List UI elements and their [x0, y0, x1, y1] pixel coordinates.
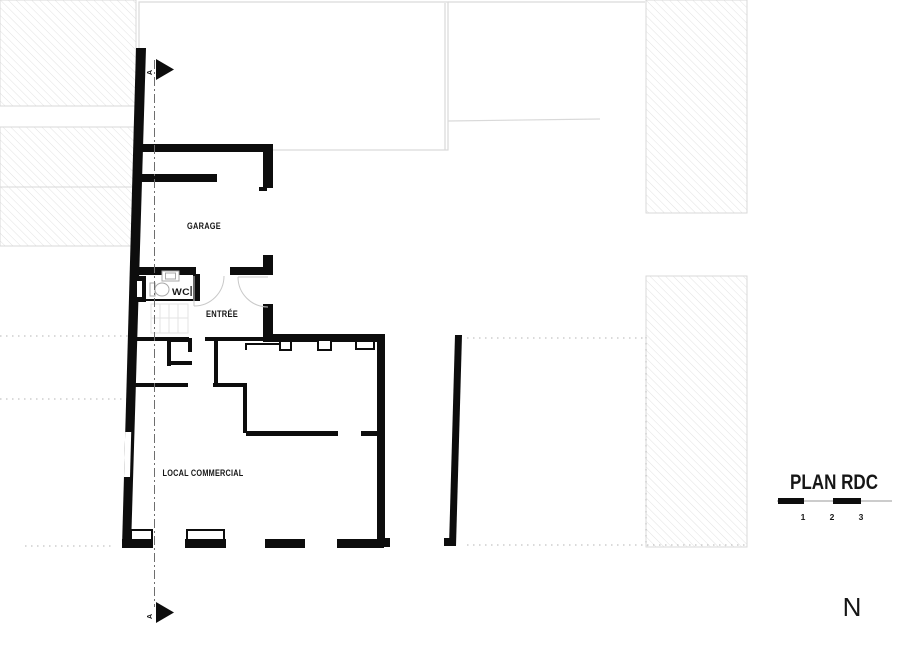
pilaster-box3: [356, 341, 374, 349]
neighbor-building-outlines: [139, 2, 645, 150]
partition-horiz-d: [361, 431, 378, 436]
wall-wc-bottom-line: [146, 299, 194, 301]
partition-top-mid: [205, 337, 263, 341]
scale-bar-segment1: [778, 498, 804, 504]
hatch-region-left-mid: [0, 127, 134, 187]
title-block: PLAN RDC 1 2 3: [777, 471, 892, 522]
alignment-dotted-lines: [0, 336, 748, 546]
scale-bar-segment2: [833, 498, 861, 504]
room-labels: GARAGE WC ENTRÉE LOCAL COMMERCIAL: [163, 221, 244, 479]
wall-local-right: [377, 334, 385, 540]
plan-title: PLAN RDC: [790, 471, 878, 494]
wc-door-leaf-line: [191, 286, 192, 296]
partition-vertical-a: [214, 337, 218, 384]
shopfront-window-box1: [131, 530, 152, 540]
door-swings: [194, 276, 268, 307]
wall-entree-right-lower: [263, 304, 273, 336]
wall-freestanding-foot: [444, 538, 453, 546]
label-garage: GARAGE: [187, 221, 221, 231]
shopfront-window-box2: [187, 530, 224, 540]
scale-tick-1: 1: [801, 512, 806, 522]
neighbor-building-top: [139, 2, 448, 150]
partition-vertical-b: [243, 386, 247, 433]
section-arrow-bottom: [156, 602, 174, 623]
scale-tick-3: 3: [859, 512, 864, 522]
partition-horiz-b: [213, 383, 247, 387]
door-arc-entree-right: [238, 277, 268, 307]
wall-garage-top: [135, 144, 273, 152]
scale-tick-2: 2: [830, 512, 835, 522]
counter-tick-left: [245, 343, 247, 350]
section-label-bottom: A: [147, 614, 154, 619]
hatch-region-left-low: [0, 187, 135, 246]
hatch-region-top-right: [646, 0, 747, 213]
partition-closet-right: [188, 338, 192, 352]
hatch-region-top-left: [0, 0, 136, 106]
wc-sink-basin: [166, 273, 176, 279]
partition-horiz-a: [135, 383, 188, 387]
wall-shopfront-seg4: [337, 539, 384, 548]
section-label-top: A: [147, 70, 154, 75]
wall-garage-inner: [136, 174, 217, 182]
toilet-bowl: [155, 283, 169, 296]
pilaster-box1: [280, 341, 291, 350]
label-wc: WC: [172, 287, 190, 297]
neighbor-boundary-mid-line: [448, 119, 600, 121]
partition-horiz-c: [246, 431, 338, 436]
floor-plan-drawing: A A GARAGE WC ENTRÉE LOCAL COMMERCIAL PL…: [0, 0, 919, 650]
wall-garage-return-tick: [259, 187, 267, 191]
wall-freestanding-right: [449, 335, 462, 546]
window-left-wall: [124, 432, 131, 477]
label-local-commercial: LOCAL COMMERCIAL: [163, 468, 244, 479]
hatch-region-right: [646, 276, 747, 547]
wall-entree-right-upper: [263, 255, 273, 275]
stairs: [151, 304, 188, 333]
wall-garage-right-return: [263, 144, 273, 188]
floor-plan-sheet: A A GARAGE WC ENTRÉE LOCAL COMMERCIAL PL…: [0, 0, 919, 650]
north-indicator: N: [843, 592, 862, 622]
partition-closet-bottom: [167, 361, 192, 365]
wall-shopfront-seg3: [265, 539, 305, 548]
window-boxes: [131, 340, 374, 540]
label-entree: ENTRÉE: [206, 309, 238, 320]
pilaster-box2: [318, 340, 331, 350]
window-wc-left: [137, 281, 142, 297]
